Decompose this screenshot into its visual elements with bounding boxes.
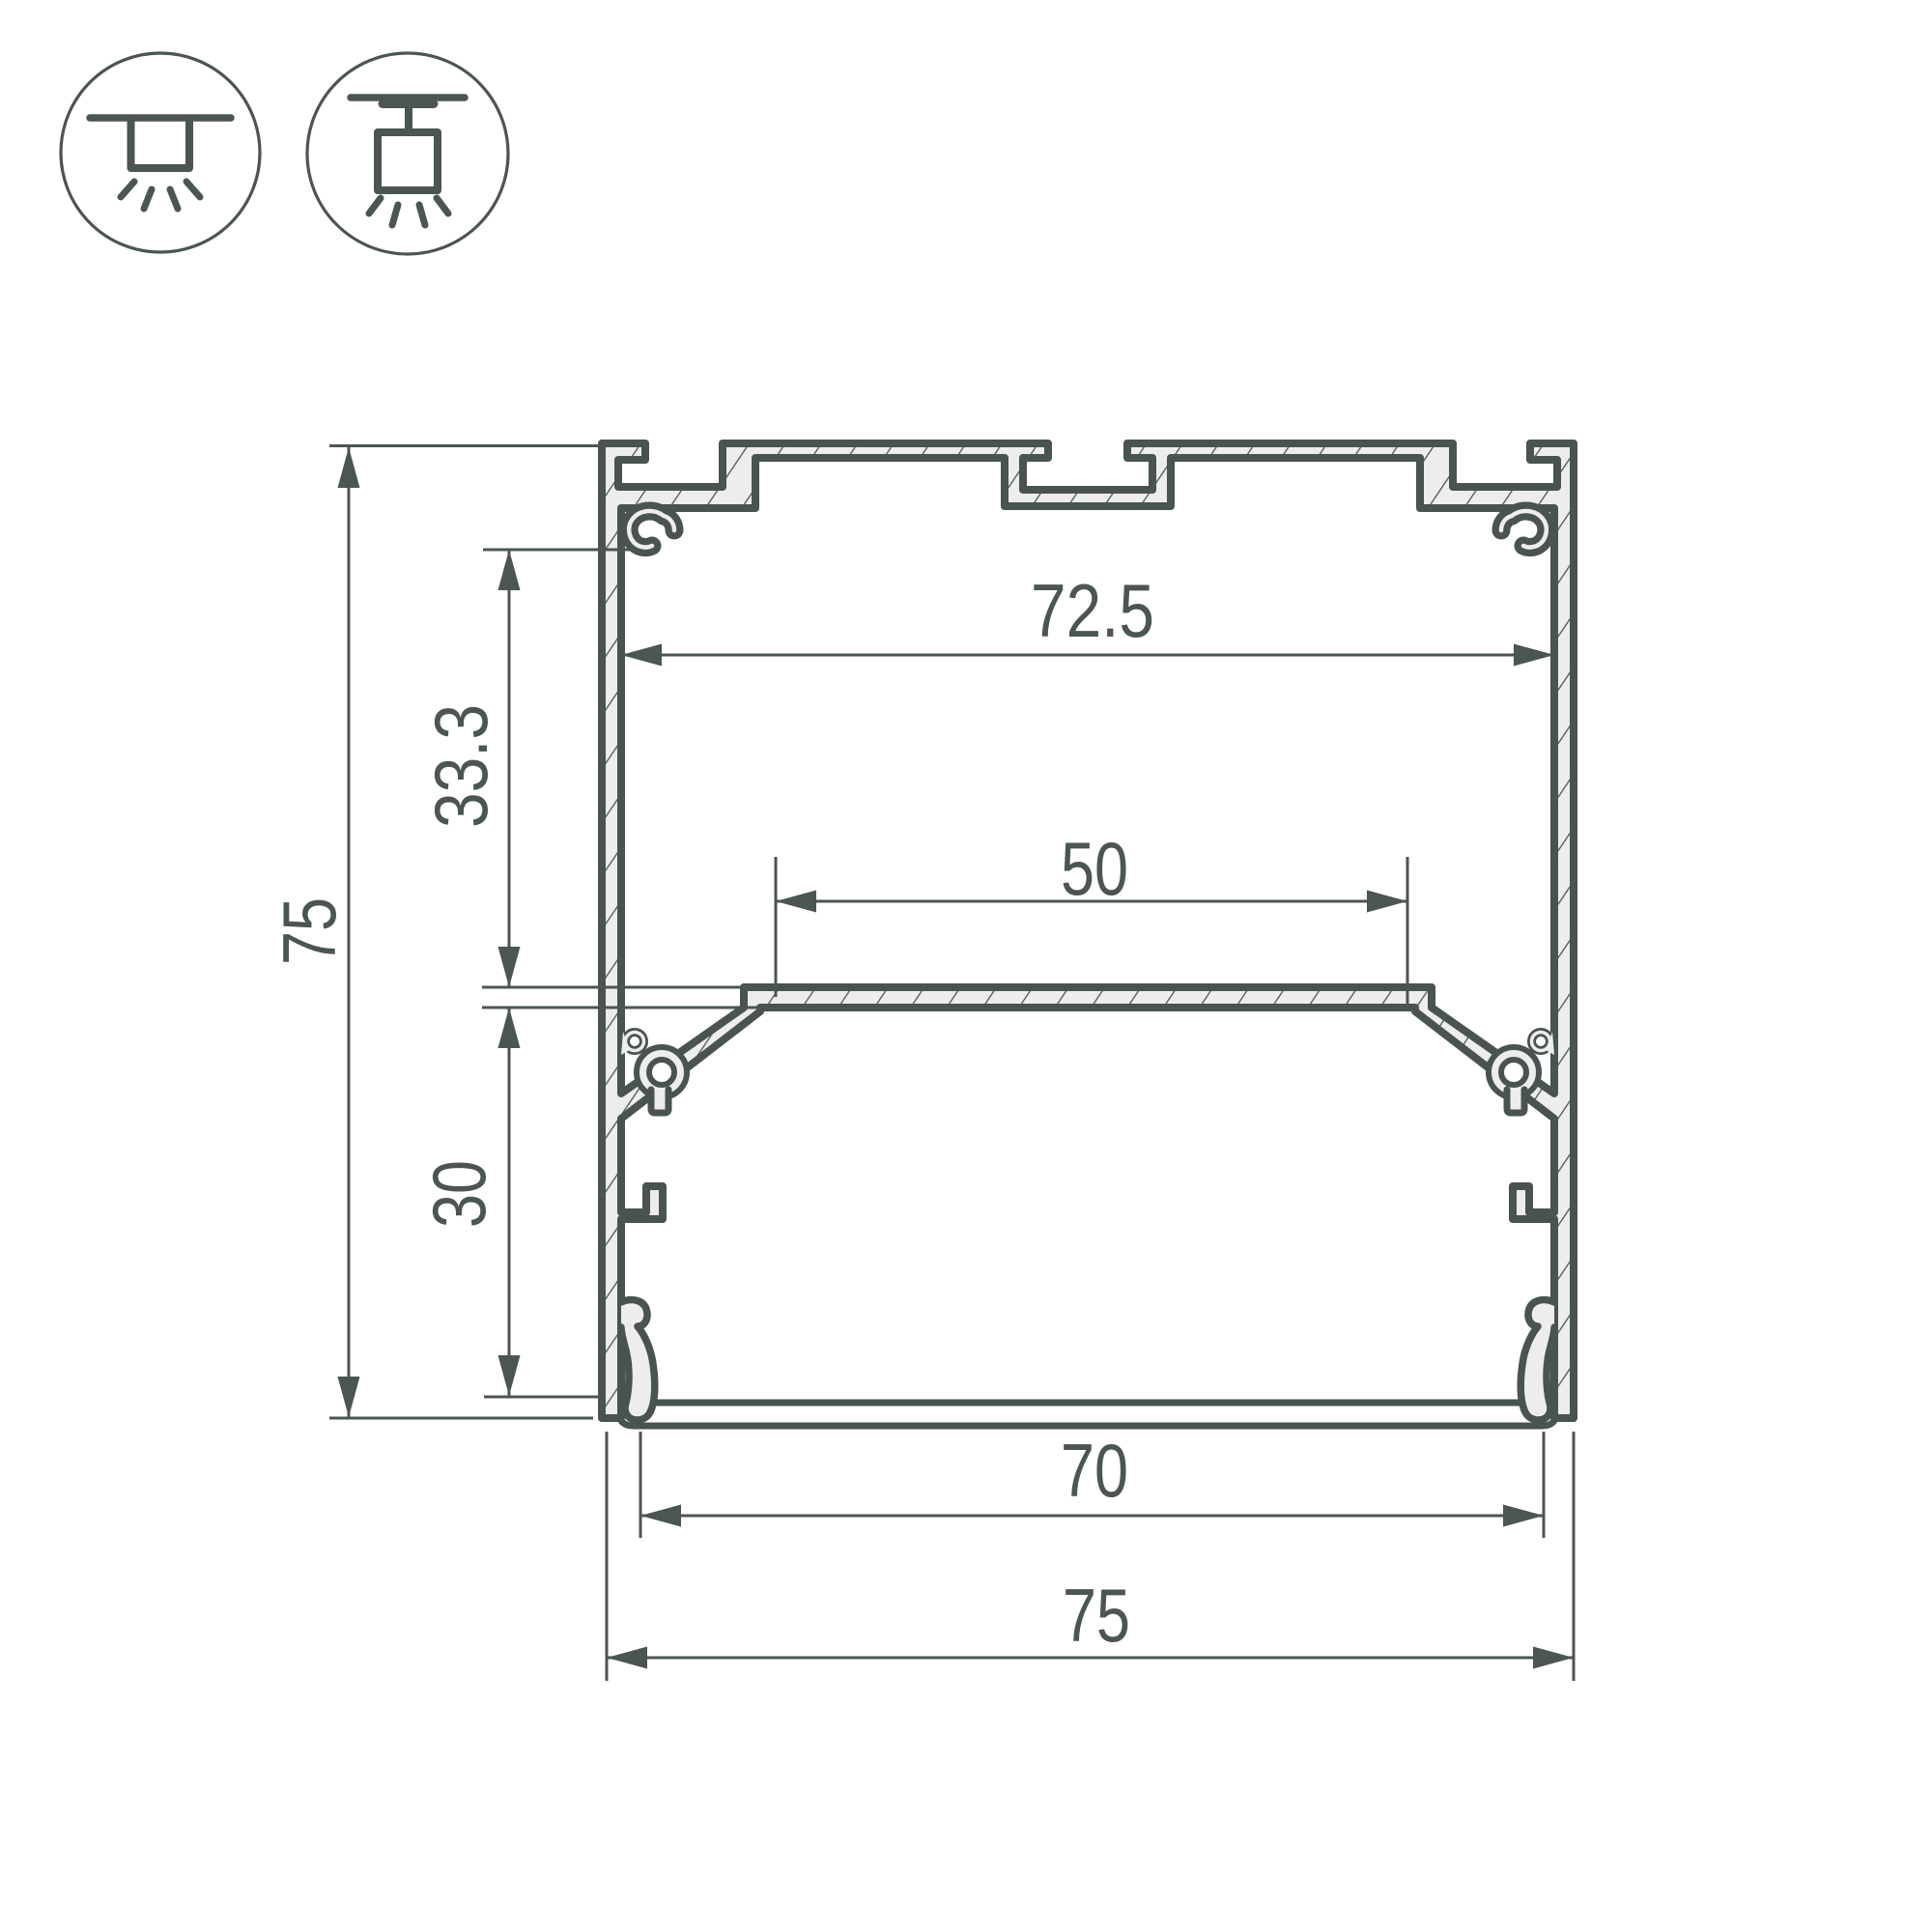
svg-text:72.5: 72.5 — [1031, 568, 1154, 653]
svg-text:50: 50 — [1061, 826, 1128, 911]
svg-text:70: 70 — [1061, 1428, 1128, 1513]
svg-text:75: 75 — [267, 897, 352, 965]
svg-text:33.3: 33.3 — [418, 704, 503, 828]
svg-text:75: 75 — [1063, 1573, 1130, 1658]
svg-text:30: 30 — [416, 1160, 501, 1228]
